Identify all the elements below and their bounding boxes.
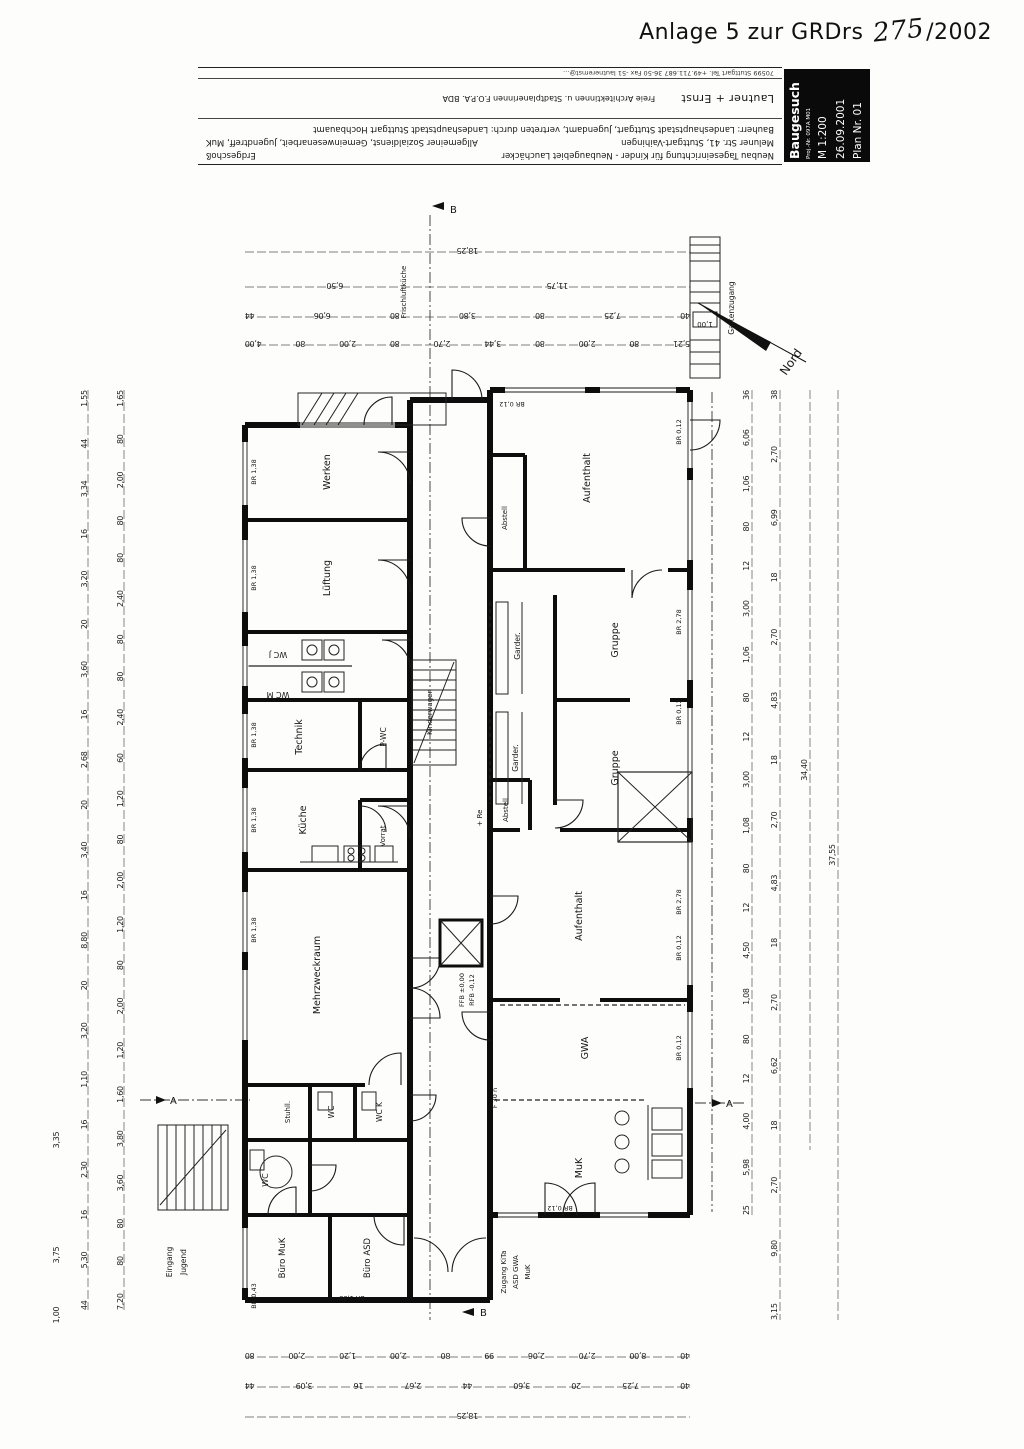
dim-value: 80 <box>116 635 126 645</box>
dim-value: 80 <box>535 310 545 320</box>
dim-chain-top-4: 4,00802,00802,703,44802,00805,21 <box>245 338 690 348</box>
room-label-abstell-2: Abstell <box>502 798 510 822</box>
wall-note: BR 0,12 <box>547 1204 573 1212</box>
dim-value: 80 <box>116 960 126 970</box>
dim-value: 5,21 <box>673 338 690 348</box>
dim-value: 5,98 <box>742 1159 752 1176</box>
dim-value: 4,00 <box>742 1113 752 1130</box>
label-eingang: Eingang <box>165 1247 174 1278</box>
dim-chain-top-3: 446,06803,80807,2540 <box>245 310 690 320</box>
room-label-gruppe-1: Gruppe <box>610 622 621 657</box>
dim-value: 80 <box>441 1350 451 1360</box>
dim-value: 40 <box>680 1380 690 1390</box>
dim-value: 1,65 <box>116 390 126 407</box>
dim-value: 80 <box>630 338 640 348</box>
dim-value: 1,08 <box>742 817 752 834</box>
room-label-wcm: WC M <box>266 690 289 699</box>
dim-top-1175: 11,75 <box>425 280 690 290</box>
dim-value: 40 <box>680 310 690 320</box>
dim-value: 2,70 <box>770 446 780 463</box>
wall-note: BR 0,12 <box>675 699 683 725</box>
dim-value: 8,00 <box>630 1350 647 1360</box>
dim-value: 4,83 <box>770 692 780 709</box>
dim-value: 12 <box>742 903 752 913</box>
wall-note: BR 2,78 <box>675 889 683 915</box>
room-label-muk: MuK <box>574 1157 585 1178</box>
room-label-werken: Werken <box>322 454 333 490</box>
dim-value: 12 <box>742 561 752 571</box>
entrance-stairs <box>158 1125 228 1210</box>
dim-value: 16 <box>80 710 90 720</box>
dim-value: 20 <box>80 620 90 630</box>
dim-value: 16 <box>80 890 90 900</box>
dim-value: 2,00 <box>579 338 596 348</box>
section-b-bottom: B <box>480 1308 487 1319</box>
dim-value: 44 <box>463 1380 473 1390</box>
dim-value: 80 <box>116 434 126 444</box>
room-label-aufenthalt-2: Aufenthalt <box>574 891 585 941</box>
dim-value: 1,06 <box>742 476 752 493</box>
dim-value: 3,60 <box>514 1380 531 1390</box>
dim-value: 4,83 <box>770 875 780 892</box>
dim-chain-left-outer: 1,55443,34163,20203,60162,68203,40168,80… <box>80 390 90 1310</box>
dim-value: 1,20 <box>116 791 126 808</box>
dim-value: 1,20 <box>116 1042 126 1059</box>
dim-value: 3,80 <box>459 310 476 320</box>
label-zugang-muk: MuK <box>524 1264 532 1279</box>
dim-value: 1,55 <box>80 390 90 407</box>
corridor-stairs <box>412 660 456 765</box>
dim-value: 18,25 <box>457 1410 478 1420</box>
wall-note: BR 0,43 <box>250 1283 258 1309</box>
dim-value: 80 <box>116 553 126 563</box>
dim-value: 2,00 <box>116 872 126 889</box>
dim-value: 3,40 <box>80 842 90 859</box>
dim-value: 3,34 <box>80 481 90 498</box>
label-zugang-kita: Zugang KiTa <box>500 1250 508 1293</box>
dim-value: 4,00 <box>245 338 262 348</box>
dim-value: 80 <box>116 835 126 845</box>
room-label-garderobe-1: Garder. <box>513 632 522 660</box>
room-label-wck: WC K <box>375 1101 384 1122</box>
dimension-lines <box>88 252 838 1417</box>
dim-right-total-a: 34,40 <box>800 390 810 1150</box>
dim-right-total-b: 37,55 <box>828 390 838 1320</box>
sanitary-fixtures <box>250 640 376 1188</box>
room-label-technik: Technik <box>294 719 305 756</box>
dim-value: 2,00 <box>390 1350 407 1360</box>
dim-value: 6,06 <box>742 429 752 446</box>
dim-value: 1,20 <box>339 1350 356 1360</box>
room-label-kinderwagen: Kinderwagen <box>426 689 434 735</box>
dim-value: 80 <box>245 1350 255 1360</box>
dim-value: 1,08 <box>742 988 752 1005</box>
room-label-garderobe-2: Garder. <box>511 744 520 772</box>
dim-value: 2,06 <box>528 1350 545 1360</box>
section-a-left: A <box>170 1096 177 1107</box>
dim-value: 2,40 <box>116 709 126 726</box>
dim-value: 2,70 <box>770 1177 780 1194</box>
dim-value: 16 <box>80 1210 90 1220</box>
dim-value: 99 <box>485 1350 495 1360</box>
dim-value: 20 <box>572 1380 582 1390</box>
wall-note: BR 0,12 <box>675 419 683 445</box>
dim-value: 3,80 <box>116 1130 126 1147</box>
dim-value: 80 <box>116 516 126 526</box>
dim-value: 1,10 <box>80 1071 90 1088</box>
room-labels: Werken Lüftung WC J WC M Technik P-WC Kü… <box>261 453 621 1278</box>
dim-value: 25 <box>742 1205 752 1215</box>
dim-value: 2,00 <box>339 338 356 348</box>
dim-value: 6,50 <box>327 280 344 290</box>
dim-bottom-total: 18,25 <box>245 1410 690 1420</box>
label-ramp-slope: 1,00 <box>697 320 713 328</box>
room-label-vorrat: Vorrat <box>379 825 387 846</box>
dim-value: 2,70 <box>770 994 780 1011</box>
dim-value: 6,99 <box>770 509 780 526</box>
label-gartenzugang: Gartenzugang <box>727 281 736 335</box>
dim-left-335: 3,35 <box>52 1080 62 1200</box>
dim-chain-right-outer: 366,061,0680123,001,0680123,001,0880124,… <box>742 390 752 1215</box>
dim-value: 20 <box>80 800 90 810</box>
dim-value: 3,75 <box>52 1247 62 1264</box>
dim-value: 5,30 <box>80 1252 90 1269</box>
room-label-mehrzweckraum: Mehrzweckraum <box>312 936 323 1014</box>
dim-value: 16 <box>80 529 90 539</box>
dim-value: 7,25 <box>622 1380 639 1390</box>
floor-plan-drawing: B B A A Nord Werken Lüftung WC J WC M Te… <box>0 0 1024 1449</box>
dim-value: 44 <box>245 1380 255 1390</box>
dim-value: 80 <box>535 338 545 348</box>
room-label-wc: WC <box>327 1106 336 1119</box>
wall-note: BR 1,38 <box>250 565 258 591</box>
dim-value: 44 <box>80 439 90 449</box>
dim-value: 16 <box>354 1380 364 1390</box>
north-label: Nord <box>777 346 805 378</box>
dim-value: 2,70 <box>770 629 780 646</box>
dim-value: 2,30 <box>80 1161 90 1178</box>
section-a-right: A <box>726 1099 733 1110</box>
dim-value: 3,00 <box>742 771 752 788</box>
dim-value: 2,00 <box>289 1350 306 1360</box>
dim-value: 34,40 <box>800 759 810 780</box>
dim-chain-right-mid: 382,706,99182,704,83182,704,83182,706,62… <box>770 390 780 1320</box>
dim-value: 11,75 <box>547 280 568 290</box>
dim-value: 7,25 <box>604 310 621 320</box>
dim-value: 18 <box>770 755 780 765</box>
dim-value: 4,50 <box>742 942 752 959</box>
label-zugang-asd-gwa: ASD GWA <box>512 1255 520 1289</box>
wall-note: BR 1,38 <box>339 1294 365 1302</box>
room-label-buero-asd: Büro ASD <box>363 1237 373 1278</box>
room-label-abstell-1: Abstell <box>501 506 509 530</box>
dim-value: 2,70 <box>579 1350 596 1360</box>
label-jugend: Jugend <box>179 1249 188 1276</box>
dim-value: 1,20 <box>116 916 126 933</box>
room-label-aufenthalt-1: Aufenthalt <box>582 453 593 503</box>
room-label-wcj: WC J <box>269 650 287 659</box>
wall-note: BR 1,38 <box>250 807 258 833</box>
dim-value: 3,09 <box>296 1380 313 1390</box>
dim-value: 40 <box>680 1350 690 1360</box>
wall-note: BR 0,12 <box>675 1035 683 1061</box>
dim-value: 1,00 <box>52 1307 62 1324</box>
dim-value: 2,70 <box>770 812 780 829</box>
dim-value: 1,60 <box>116 1086 126 1103</box>
dim-value: 80 <box>116 1256 126 1266</box>
dim-value: 3,20 <box>80 1022 90 1039</box>
dim-value: 44 <box>80 1300 90 1310</box>
room-label-stuhllager: Stuhll. <box>284 1101 292 1123</box>
dim-chain-bottom-1: 802,001,202,0080992,062,708,0040 <box>245 1350 690 1360</box>
dim-value: 80 <box>116 672 126 682</box>
dim-value: 20 <box>80 981 90 991</box>
label-rfb: RFB -0,12 <box>468 974 476 1006</box>
dim-value: 80 <box>742 864 752 874</box>
dim-value: 60 <box>116 753 126 763</box>
terrace-outline <box>140 215 745 1320</box>
dim-value: 80 <box>742 1035 752 1045</box>
dim-value: 18 <box>770 938 780 948</box>
dim-value: 80 <box>296 338 306 348</box>
dim-value: 3,44 <box>485 338 502 348</box>
dim-value: 1,06 <box>742 647 752 664</box>
wall-notes: BR 1,38 BR 1,38 BR 1,38 BR 1,38 BR 1,38 … <box>250 400 683 1309</box>
dim-left-100: 1,00 <box>52 1285 62 1345</box>
label-f30: F 30 n <box>491 1088 499 1108</box>
dim-value: 7,20 <box>116 1293 126 1310</box>
dim-value: 38 <box>770 390 780 400</box>
dim-chain-bottom-2: 443,09162,67443,60207,2540 <box>245 1380 690 1390</box>
section-b-top: B <box>450 205 457 216</box>
room-label-wc-barrier-free: WC <box>261 1173 270 1187</box>
dim-value: 2,67 <box>405 1380 422 1390</box>
room-label-gruppe-2: Gruppe <box>610 750 621 785</box>
dim-value: 36 <box>742 390 752 400</box>
dim-value: 2,40 <box>116 590 126 607</box>
dim-chain-left-inner: 1,65802,0080802,4080802,40601,20802,001,… <box>116 390 126 1310</box>
dim-value: 80 <box>390 310 400 320</box>
dim-value: 2,00 <box>116 472 126 489</box>
dim-value: 12 <box>742 732 752 742</box>
wall-note: BR 1,38 <box>250 722 258 748</box>
dim-value: 8,80 <box>80 932 90 949</box>
dim-value: 3,60 <box>80 661 90 678</box>
room-label-kueche: Küche <box>298 805 309 834</box>
dim-value: 3,15 <box>770 1303 780 1320</box>
dim-value: 6,62 <box>770 1057 780 1074</box>
shaft-boxes <box>440 772 692 966</box>
dim-value: 80 <box>742 522 752 532</box>
room-label-buero-muk: Büro MuK <box>278 1237 288 1278</box>
dim-value: 37,55 <box>828 844 838 865</box>
label-re-mark: + Re <box>476 810 484 827</box>
dim-top-total: 18,25 <box>245 245 690 255</box>
dim-value: 16 <box>80 1120 90 1130</box>
dim-value: 3,00 <box>742 600 752 617</box>
dim-value: 9,80 <box>770 1240 780 1257</box>
dim-value: 3,35 <box>52 1132 62 1149</box>
scanned-plan-sheet: Anlage 5 zur GRDrs 275/2002 Neubau Tages… <box>0 0 1024 1449</box>
wall-note: BR 0,12 <box>499 400 525 408</box>
room-label-gwa: GWA <box>580 1036 591 1059</box>
dim-value: 18 <box>770 573 780 583</box>
wall-note: BR 1,38 <box>250 917 258 943</box>
room-label-pwc: P-WC <box>379 727 388 746</box>
dim-value: 80 <box>116 1219 126 1229</box>
dim-value: 3,20 <box>80 571 90 588</box>
wall-note: BR 0,12 <box>675 935 683 961</box>
dim-value: 44 <box>245 310 255 320</box>
wall-note: BR 1,38 <box>250 459 258 485</box>
dim-value: 2,70 <box>434 338 451 348</box>
dim-value: 2,00 <box>116 998 126 1015</box>
dim-value: 18,25 <box>457 245 478 255</box>
dim-value: 80 <box>742 693 752 703</box>
dim-value: 18 <box>770 1121 780 1131</box>
dim-top-650: 6,50 <box>245 280 425 290</box>
room-label-lueftung: Lüftung <box>322 560 333 596</box>
light-partitions <box>245 666 685 1100</box>
wall-note: BR 2,78 <box>675 609 683 635</box>
dim-value: 80 <box>390 338 400 348</box>
dim-value: 3,60 <box>116 1175 126 1192</box>
dim-value: 6,06 <box>314 310 331 320</box>
dim-value: 2,68 <box>80 752 90 769</box>
dim-value: 12 <box>742 1074 752 1084</box>
label-ffb: FFB ±0,00 <box>458 973 466 1007</box>
